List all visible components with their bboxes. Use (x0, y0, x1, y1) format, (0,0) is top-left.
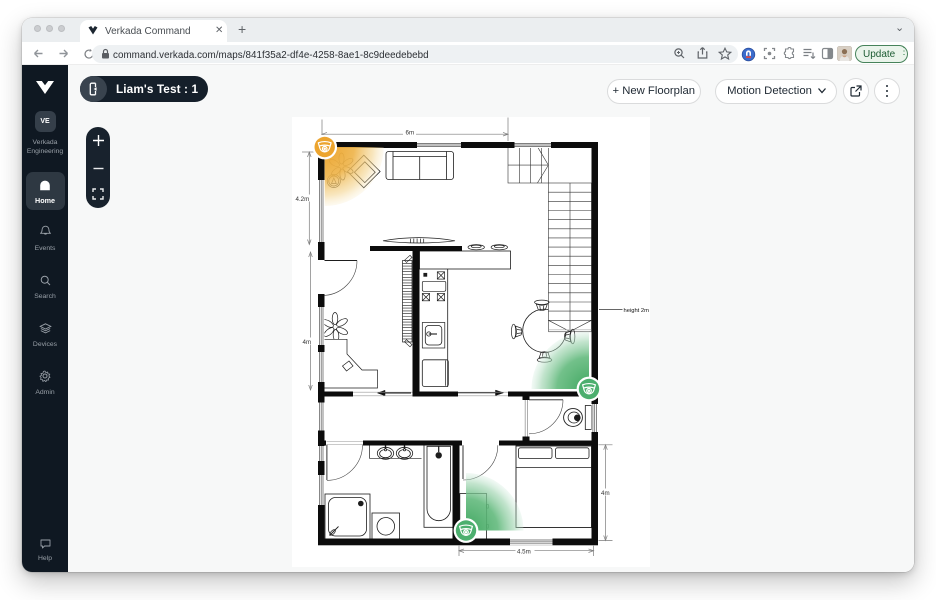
svg-text:height 2m: height 2m (624, 308, 650, 314)
svg-text:6m: 6m (406, 130, 415, 137)
svg-text:4.5m: 4.5m (517, 548, 531, 555)
svg-text:4m: 4m (601, 490, 610, 497)
svg-text:4m: 4m (303, 339, 312, 346)
svg-text:4.2m: 4.2m (296, 196, 310, 203)
